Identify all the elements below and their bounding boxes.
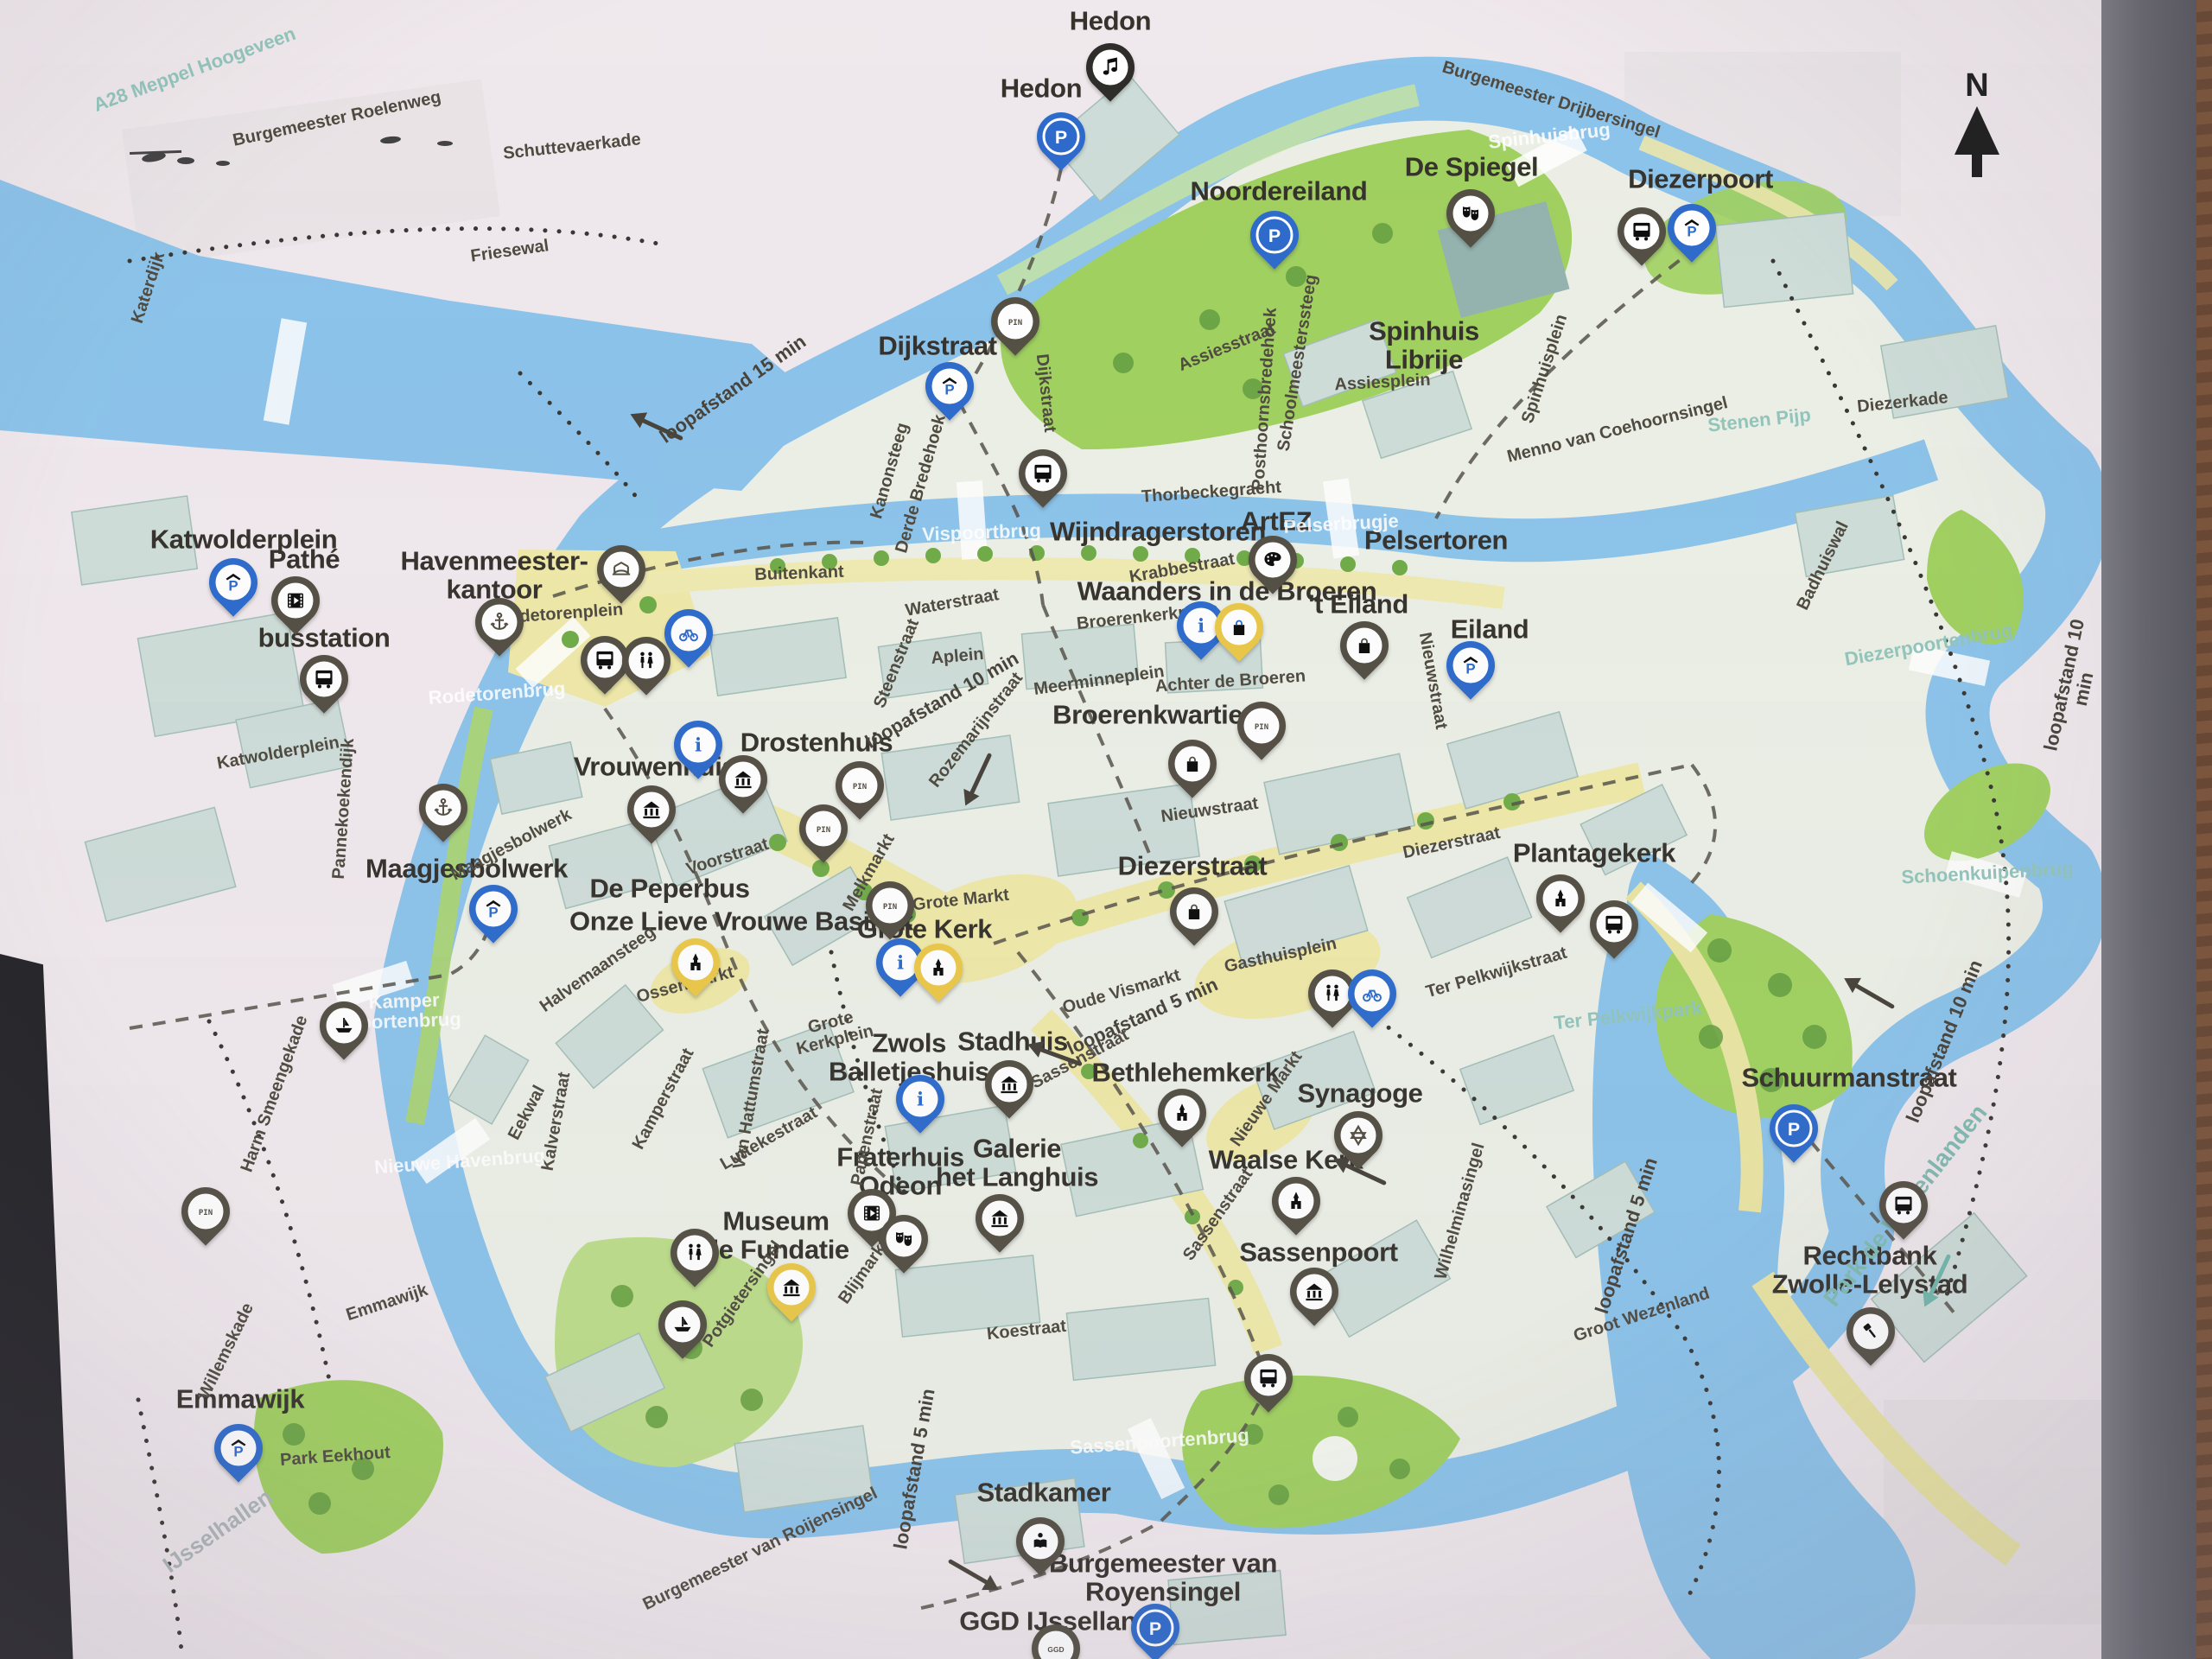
sassenpoort-bus-pin: [1244, 1354, 1293, 1402]
harm-smeengekade-pin-pin: [181, 1187, 230, 1236]
parking-covered-icon: [227, 1437, 251, 1460]
drostenhuis-museum-pin: [719, 755, 767, 804]
t-eiland-shopping-pin: [1340, 621, 1389, 670]
noordereiland-parking-pin: [1250, 211, 1299, 259]
bike-icon: [1361, 982, 1384, 1006]
stadhuis-building-pin: [985, 1060, 1033, 1109]
museum-icon: [1303, 1281, 1326, 1304]
hedon-music-pin: [1086, 43, 1135, 92]
masks-icon: [893, 1228, 916, 1251]
artez-art-pin: [1249, 536, 1297, 584]
music-icon: [1099, 56, 1122, 79]
bag-icon: [1353, 634, 1376, 658]
pin-label-icon: [812, 817, 836, 841]
ggd-icon: [1045, 1637, 1068, 1659]
katwolderplein-parking-pin: [209, 558, 257, 607]
bag-icon: [1181, 753, 1205, 776]
fraterhuis-theater-pin: [880, 1215, 928, 1263]
maagjesbolwerk-parking-pin: [469, 885, 518, 933]
grote-markt-pin-pin: [866, 881, 914, 930]
parking-covered-icon: [938, 375, 962, 398]
balletjeshuis-info-pin: [896, 1075, 944, 1123]
plantagekerk-church-pin: [1536, 874, 1585, 923]
pin-label-icon: [879, 894, 902, 918]
kamperpoort-boat-pin: [320, 1001, 368, 1050]
royensingel-parking-pin: [1131, 1604, 1179, 1652]
museum-icon: [780, 1276, 804, 1300]
busstation-bus-pin: [300, 655, 348, 703]
church-icon: [1285, 1190, 1308, 1213]
museum-icon: [998, 1073, 1021, 1096]
vrouwenhuis-info-pin: [674, 721, 722, 769]
parking-icon: [1050, 125, 1073, 149]
stadkamer-library-pin: [1016, 1517, 1065, 1566]
church-icon: [1171, 1102, 1194, 1125]
parking-covered-icon: [222, 571, 245, 594]
dijkstraat-parking-pin: [925, 362, 974, 410]
toilet-icon: [683, 1242, 707, 1265]
rodetorenplein-bridge-pin: [597, 545, 645, 594]
church-icon: [684, 951, 708, 975]
bus-icon: [1257, 1367, 1281, 1390]
church-icon: [1549, 887, 1573, 911]
parking-covered-icon: [482, 898, 505, 921]
sign-frame-right: [2101, 0, 2196, 1659]
pin-label-icon: [1004, 310, 1027, 334]
parking-icon: [1263, 224, 1287, 247]
reader-icon: [1029, 1530, 1052, 1554]
boat-icon: [333, 1014, 356, 1038]
dijkstraat-pin-pin: [991, 297, 1039, 346]
diezerstraat-shopping-pin: [1170, 887, 1218, 936]
bike-icon: [677, 622, 701, 645]
schuurmanstraat-parking-pin: [1770, 1104, 1818, 1153]
emmawijk-parking-pin: [214, 1424, 263, 1472]
diezerpoort-bus-pin: [1618, 207, 1666, 256]
bag-icon: [1183, 900, 1206, 924]
info-icon: [909, 1088, 932, 1111]
anchor-icon: [488, 611, 512, 634]
museum-icon: [640, 798, 664, 822]
sassenpoort-monument-pin: [1290, 1268, 1338, 1316]
plantagekerk-bus-pin: [1590, 900, 1638, 949]
eiland-parking-pin: [1446, 641, 1495, 690]
gavel-icon: [1859, 1320, 1883, 1344]
fundatie-toilet-pin: [671, 1229, 719, 1277]
fundatie-museum-pin: [767, 1263, 816, 1312]
synagoge-star-pin: [1334, 1111, 1382, 1160]
bus-icon: [1032, 462, 1055, 486]
info-icon: [889, 951, 912, 975]
parking-icon: [1144, 1617, 1167, 1640]
hedon-parking-pin: [1037, 112, 1085, 161]
toilet-icon: [635, 650, 658, 673]
masks-icon: [1459, 202, 1483, 226]
bus-icon: [313, 668, 336, 691]
rechtbank-gavel-pin: [1847, 1307, 1895, 1356]
wezenlanden-bus-pin: [1879, 1181, 1928, 1230]
bus-icon: [594, 649, 617, 672]
broerenkwartier-shopping-pin: [1168, 740, 1217, 788]
bag-icon: [1228, 616, 1251, 639]
toilet-icon: [1321, 982, 1344, 1006]
bus-icon: [1603, 913, 1626, 937]
museum-icon: [988, 1207, 1012, 1230]
ggd-ijsselland-pin-pin: [1032, 1624, 1080, 1659]
bus-icon: [1630, 220, 1654, 244]
grote-kerk-church-pin: [914, 944, 963, 992]
waanders-shopping-pin: [1215, 603, 1263, 652]
pathe-cinema-pin: [271, 576, 320, 625]
museum-icon: [732, 768, 755, 791]
broeren-pin-pin: [1237, 702, 1286, 750]
synagogue-icon: [1347, 1124, 1370, 1147]
info-icon: [1190, 614, 1213, 638]
diezerpoort-parking-pin: [1668, 204, 1716, 252]
compass-label: N: [1955, 67, 1999, 105]
north-arrow-stem: [1972, 155, 1982, 177]
boat-icon: [671, 1313, 695, 1337]
de-spiegel-theater-pin: [1446, 189, 1495, 238]
rodetorenplein-bike-pin: [664, 609, 713, 658]
rodetorenplein-toilet-pin: [622, 637, 671, 685]
dijkstraat-bus-pin: [1019, 449, 1067, 498]
church-icon: [927, 957, 950, 980]
waalse-kerk-church-pin: [1272, 1177, 1320, 1225]
peperbus-church-pin: [671, 938, 720, 987]
north-arrow-icon: [1955, 106, 1999, 155]
langhuis-museum-pin: [976, 1194, 1024, 1243]
jufferenwal-anchor-pin: [419, 784, 467, 832]
fundatie-boat-pin: [658, 1300, 707, 1349]
pin-label-icon: [194, 1200, 218, 1224]
compass-north: N: [1955, 67, 1999, 177]
melkmarkt-pin-2-pin: [799, 804, 848, 853]
pin-label-icon: [1250, 715, 1274, 738]
info-icon: [687, 734, 710, 757]
anchor-icon: [432, 797, 455, 820]
background-foliage-strip: [2196, 0, 2212, 1659]
art-icon: [1262, 549, 1285, 572]
pins-layer: [0, 0, 2212, 1659]
parking-covered-icon: [1681, 217, 1704, 240]
havenmeester-anchor-pin: [475, 598, 524, 646]
bridge-icon: [610, 558, 633, 582]
parking-covered-icon: [1459, 654, 1483, 677]
bethlehemkerk-church-pin: [1158, 1089, 1206, 1137]
pin-label-icon: [849, 774, 872, 798]
zwolle-map-sign-photo: P P PIN GGD i: [0, 0, 2212, 1659]
vrouwenhuis-museum-pin: [627, 785, 676, 834]
film-icon: [284, 589, 308, 613]
parking-icon: [1783, 1117, 1806, 1141]
gasthuisplein-bike-pin: [1348, 969, 1396, 1018]
bus-icon: [1892, 1194, 1916, 1217]
melkmarkt-pin-1-pin: [836, 761, 884, 810]
